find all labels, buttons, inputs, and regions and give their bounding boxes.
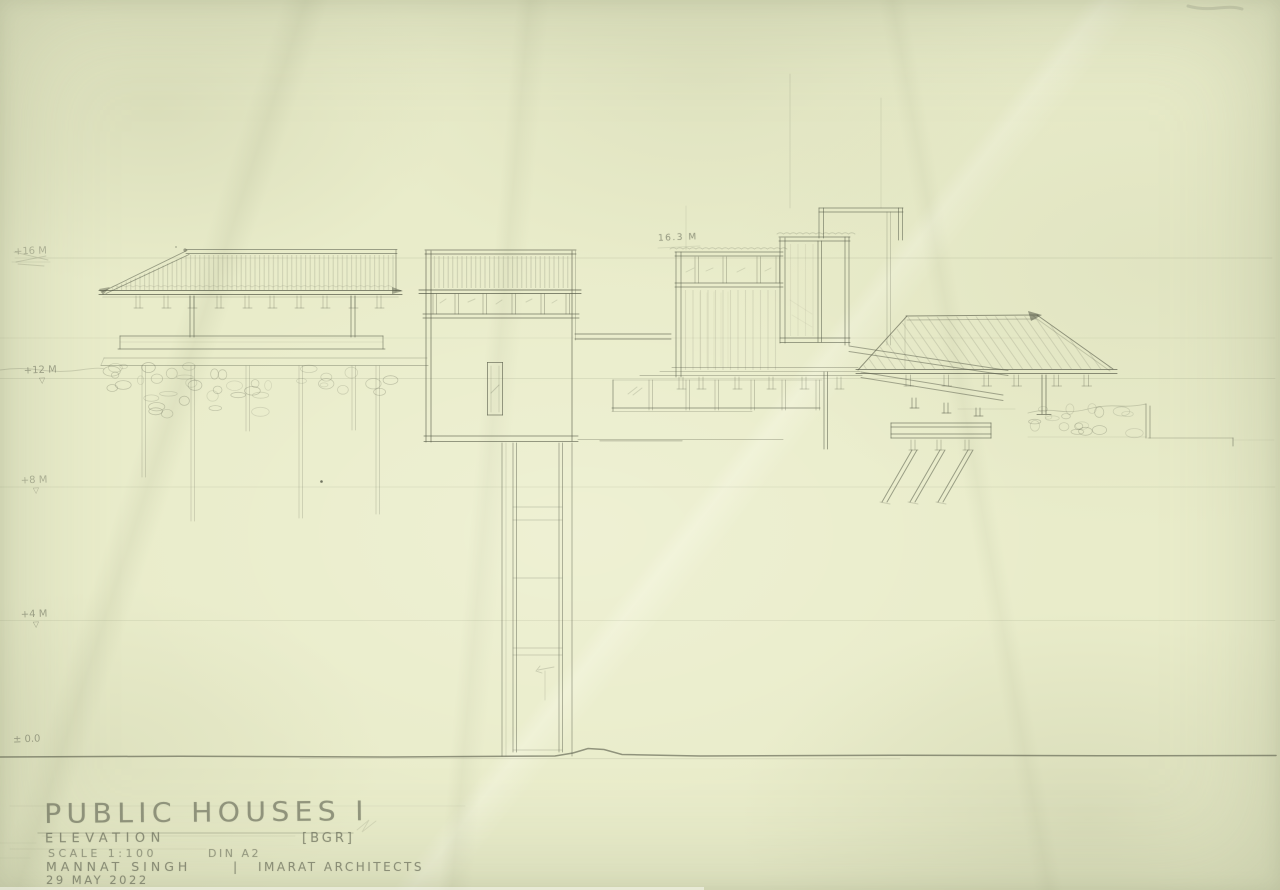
guide-lines <box>0 74 1275 621</box>
ground-line <box>0 749 1276 759</box>
height-annotation: 16.3 M <box>658 232 698 243</box>
right-roof <box>856 311 1117 415</box>
drawing-date: 29 MAY 2022 <box>46 873 149 887</box>
author-name: MANNAT SINGH <box>46 859 191 874</box>
datum-triangle-icon: ▽ <box>33 620 39 629</box>
elevation-linework <box>0 0 1280 890</box>
stone-wall <box>1028 404 1274 446</box>
firm-name: IMARAT ARCHITECTS <box>258 860 424 874</box>
stair-shaft <box>502 443 572 756</box>
elevation-label: +16 M <box>14 246 47 258</box>
separator-mark: | <box>233 859 237 874</box>
drawing-title: PUBLIC HOUSES I <box>44 796 369 830</box>
elevation-marker-8m: +8 M ▽ <box>21 476 48 496</box>
left-pavilion <box>0 250 428 522</box>
deck-structure <box>880 423 991 504</box>
datum-triangle-icon: ▽ <box>39 376 45 385</box>
datum-triangle-icon: ▽ <box>33 486 39 495</box>
elevation-marker-12m: +12 M ▽ <box>24 365 58 385</box>
drawing-type-label: ELEVATION <box>45 831 166 847</box>
drawing-sheet: +16 M +12 M ▽ +8 M ▽ +4 M ▽ ± 0.0 16.3 M… <box>0 0 1280 890</box>
elevation-marker-4m: +4 M ▽ <box>21 610 48 630</box>
elevation-label: ± 0.0 <box>13 735 41 746</box>
elevation-marker-0m: ± 0.0 <box>13 735 41 746</box>
middle-building <box>612 208 903 449</box>
drawing-tag: [BGR] <box>302 831 355 846</box>
elevation-marker-16m: +16 M <box>14 246 47 258</box>
